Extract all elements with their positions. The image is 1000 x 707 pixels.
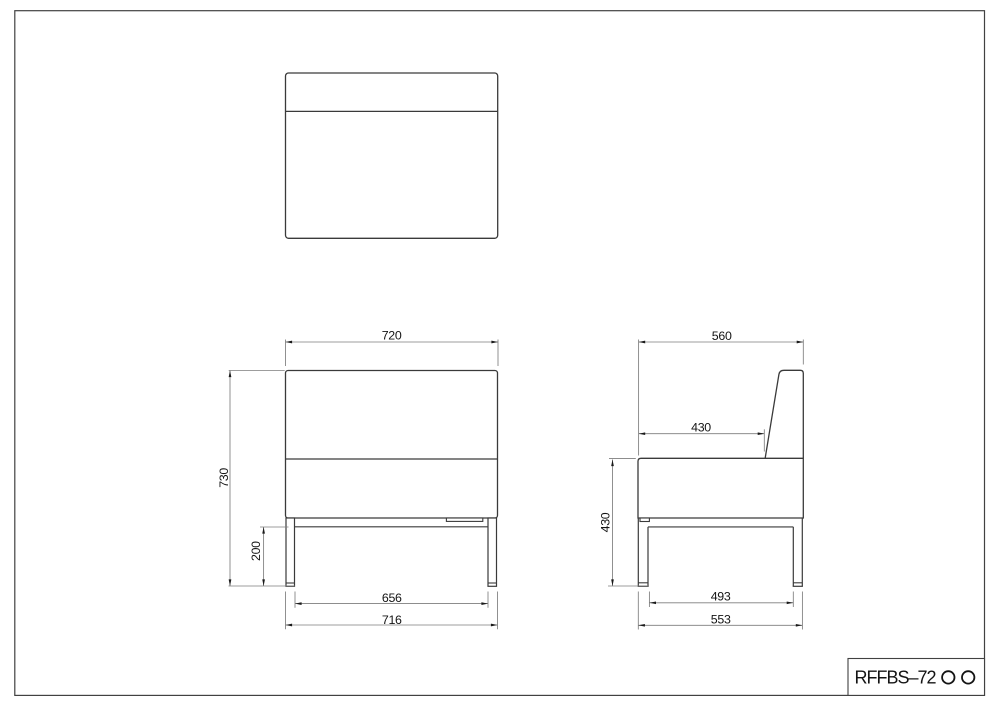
svg-text:656: 656 [382, 591, 402, 605]
svg-text:730: 730 [217, 468, 231, 488]
svg-text:720: 720 [382, 328, 402, 342]
svg-text:430: 430 [691, 421, 711, 435]
svg-text:553: 553 [711, 612, 731, 626]
svg-text:716: 716 [382, 613, 402, 627]
svg-text:200: 200 [249, 541, 263, 561]
svg-text:430: 430 [598, 512, 612, 532]
svg-text:560: 560 [712, 329, 732, 343]
svg-text:493: 493 [711, 589, 731, 603]
svg-text:RFFBS–72: RFFBS–72 [855, 667, 937, 687]
